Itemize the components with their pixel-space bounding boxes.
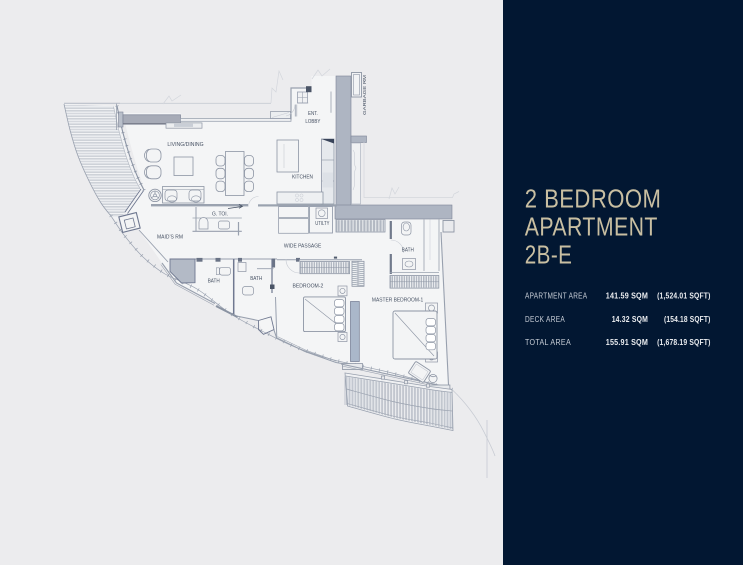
svg-text:(1,524.01 SQFT): (1,524.01 SQFT) (657, 292, 711, 301)
svg-text:KITCHEN: KITCHEN (292, 174, 313, 180)
svg-text:2 BEDROOM: 2 BEDROOM (525, 183, 662, 213)
svg-text:G. TOI.: G. TOI. (212, 211, 228, 217)
svg-text:BATH: BATH (250, 276, 262, 282)
svg-text:BEDROOM-2: BEDROOM-2 (292, 283, 323, 289)
svg-text:(154.18 SQFT): (154.18 SQFT) (664, 315, 711, 324)
svg-text:UTILTY: UTILTY (315, 221, 329, 227)
svg-text:141.59 SQM: 141.59 SQM (606, 292, 648, 301)
svg-text:WIDE PASSAGE: WIDE PASSAGE (284, 243, 322, 249)
svg-text:ENT.: ENT. (308, 111, 318, 117)
svg-text:2B-E: 2B-E (525, 239, 573, 269)
svg-text:GARBAGE RM: GARBAGE RM (362, 74, 367, 115)
svg-text:BATH: BATH (208, 278, 220, 284)
svg-text:MASTER BEDROOM-1: MASTER BEDROOM-1 (372, 297, 423, 303)
svg-text:APARTMENT: APARTMENT (525, 211, 658, 241)
svg-text:DECK AREA: DECK AREA (525, 315, 565, 324)
svg-text:LIVING/DINING: LIVING/DINING (167, 142, 203, 148)
svg-text:155.91 SQM: 155.91 SQM (606, 338, 648, 347)
svg-text:14.32 SQM: 14.32 SQM (612, 315, 648, 324)
svg-text:(1,678.19 SQFT): (1,678.19 SQFT) (657, 338, 711, 347)
svg-text:APARTMENT AREA: APARTMENT AREA (525, 292, 588, 301)
svg-text:MAID’S RM: MAID’S RM (157, 235, 183, 241)
svg-text:TOTAL AREA: TOTAL AREA (525, 338, 571, 347)
svg-text:LOBBY: LOBBY (305, 119, 320, 125)
svg-text:BATH: BATH (402, 248, 414, 254)
